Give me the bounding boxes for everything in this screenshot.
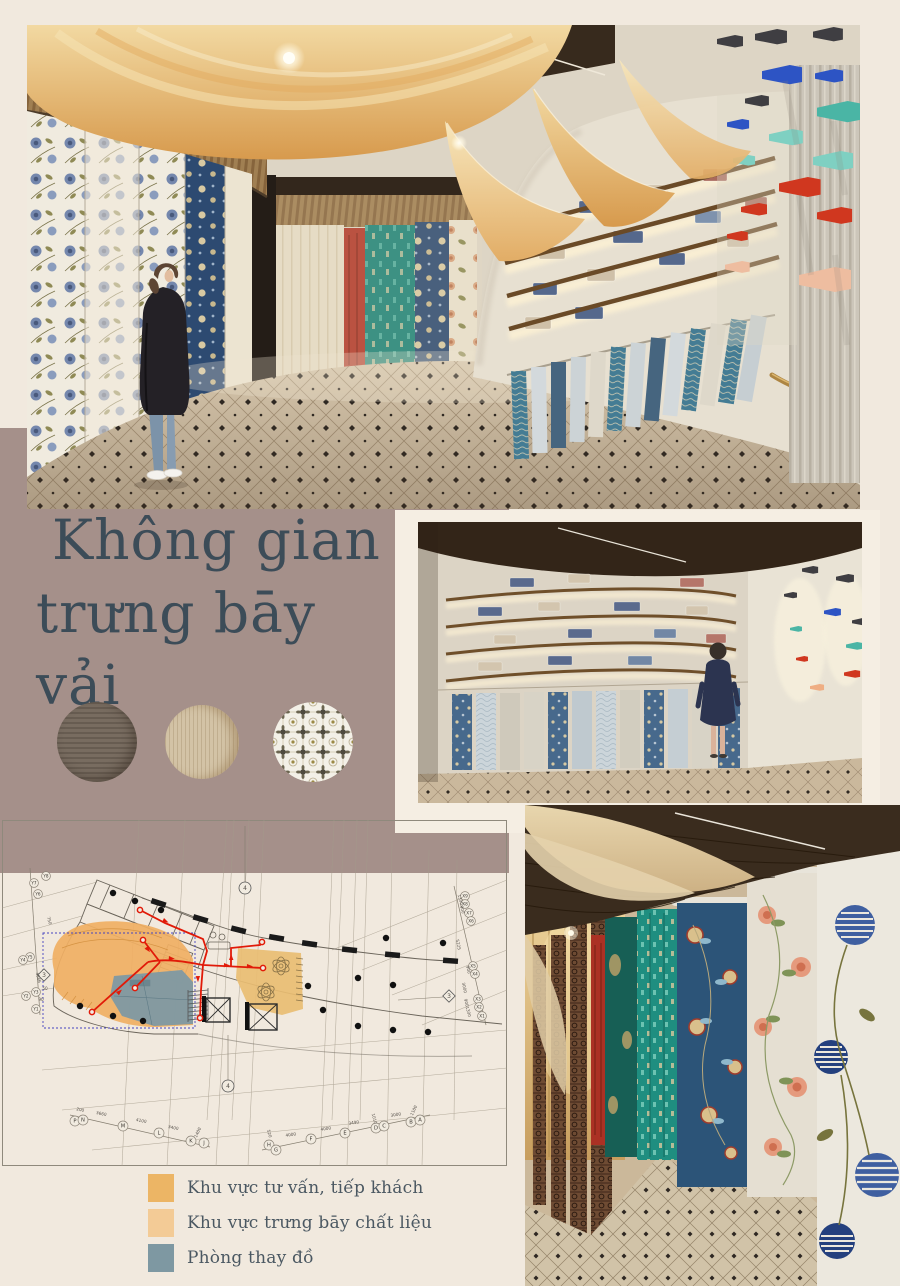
svg-text:3660: 3660 <box>96 1110 108 1117</box>
svg-text:B: B <box>409 1120 413 1126</box>
legend-color-consultation <box>148 1174 174 1202</box>
svg-text:Y2: Y2 <box>22 994 29 999</box>
svg-text:4: 4 <box>243 885 247 892</box>
svg-text:N: N <box>81 1118 85 1124</box>
legend-label-consultation: Khu vực tư vấn, tiếp khách <box>187 1178 424 1198</box>
page-title-line1: Không gian <box>36 504 416 577</box>
svg-text:Y3: Y3 <box>32 990 39 995</box>
material-swatch-dark-wood <box>57 702 137 782</box>
svg-text:C: C <box>382 1124 386 1130</box>
svg-text:750: 750 <box>46 916 53 925</box>
legend-row-material-display: Khu vực trưng bāy chất liệu <box>148 1209 432 1237</box>
svg-text:3000: 3000 <box>390 1111 402 1118</box>
plan-grid-bubbles: Y8Y7Y6Y5Y4Y3Y2Y1X9X8X7X6X5X4X3X2X1PNMLKJ… <box>19 872 487 1155</box>
svg-text:3490: 3490 <box>348 1119 360 1126</box>
svg-text:50: 50 <box>42 986 48 991</box>
material-swatch-light-oak <box>165 705 239 779</box>
svg-text:Y8: Y8 <box>42 874 49 879</box>
svg-text:H: H <box>267 1143 271 1149</box>
svg-text:200: 200 <box>76 1106 85 1113</box>
page-title-line2: trưng bāy vải <box>36 577 416 722</box>
svg-text:4100: 4100 <box>136 1117 148 1124</box>
page-title: Không gian trưng bāy vải <box>36 504 416 722</box>
svg-text:E: E <box>343 1131 346 1137</box>
svg-text:P: P <box>73 1119 76 1125</box>
svg-text:4000: 4000 <box>320 1125 332 1132</box>
svg-text:1300: 1300 <box>465 1006 473 1018</box>
svg-text:X4: X4 <box>472 972 478 977</box>
svg-text:90: 90 <box>38 997 44 1002</box>
legend-row-fitting-room: Phòng thay đồ <box>148 1244 432 1272</box>
floor-plan-sheet: 4433 Y8Y7Y6Y5Y4Y3Y2Y1X9X8X7X6X5X4X3X2X1P… <box>2 820 507 1166</box>
svg-text:Y6: Y6 <box>34 892 41 897</box>
plan-wall-doors <box>151 898 459 964</box>
svg-text:Y1: Y1 <box>32 1007 39 1012</box>
svg-text:4: 4 <box>226 1083 230 1090</box>
render-main-corridor-image <box>27 25 860 509</box>
legend-color-material-display <box>148 1209 174 1237</box>
svg-text:900: 900 <box>465 965 472 974</box>
svg-text:1400: 1400 <box>193 1126 202 1138</box>
svg-text:3400: 3400 <box>168 1124 180 1131</box>
svg-text:X1: X1 <box>479 1014 485 1019</box>
svg-text:3: 3 <box>447 993 451 1000</box>
svg-text:3000: 3000 <box>461 982 468 994</box>
svg-text:Y4: Y4 <box>19 958 26 963</box>
svg-text:G: G <box>274 1148 278 1154</box>
legend-color-fitting-room <box>148 1244 174 1272</box>
svg-text:X3: X3 <box>475 997 481 1002</box>
legend-label-fitting-room: Phòng thay đồ <box>187 1248 314 1268</box>
mid-peg-wall <box>748 540 862 772</box>
svg-text:520: 520 <box>266 1129 273 1138</box>
svg-text:K: K <box>189 1139 193 1145</box>
presentation-board: Không gian trưng bāy vải <box>0 0 900 1286</box>
plan-legend: Khu vực tư vấn, tiếp khách Khu vực trưng… <box>148 1174 432 1279</box>
svg-text:1010: 1010 <box>371 1113 379 1125</box>
svg-text:X6: X6 <box>468 919 474 924</box>
svg-text:M: M <box>121 1124 125 1130</box>
svg-text:Y7: Y7 <box>30 881 37 886</box>
legend-row-consultation: Khu vực tư vấn, tiếp khách <box>148 1174 432 1202</box>
svg-text:X7: X7 <box>466 911 472 916</box>
svg-text:F: F <box>310 1137 313 1143</box>
svg-text:A: A <box>418 1118 422 1124</box>
material-swatch-patterned-tile <box>273 702 353 782</box>
legend-label-material-display: Khu vực trưng bāy chất liệu <box>187 1213 432 1233</box>
svg-text:1100: 1100 <box>409 1104 418 1116</box>
svg-text:X2: X2 <box>476 1005 482 1010</box>
svg-text:4000: 4000 <box>285 1131 297 1138</box>
render-fabric-gallery-image <box>525 805 900 1286</box>
render-display-room-image <box>418 522 862 803</box>
svg-text:3: 3 <box>42 972 46 979</box>
svg-text:L: L <box>158 1131 161 1137</box>
svg-text:D: D <box>374 1126 378 1132</box>
